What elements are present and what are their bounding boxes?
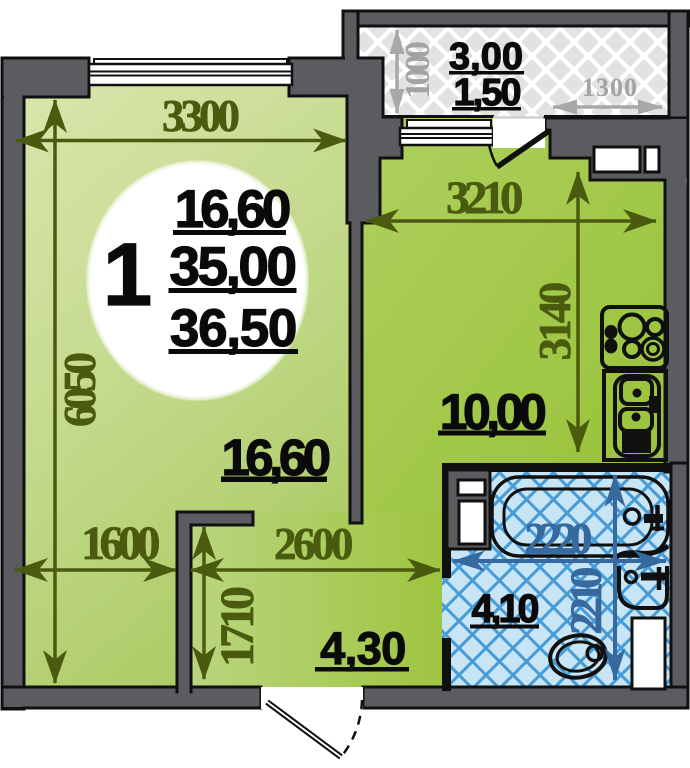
svg-text:35,00: 35,00 bbox=[169, 235, 295, 297]
svg-text:4,30: 4,30 bbox=[320, 623, 406, 674]
svg-text:6050: 6050 bbox=[55, 354, 105, 428]
svg-text:2600: 2600 bbox=[274, 519, 352, 569]
svg-text:1300: 1300 bbox=[582, 73, 638, 102]
svg-text:3140: 3140 bbox=[530, 283, 580, 360]
svg-text:1600: 1600 bbox=[81, 517, 160, 570]
svg-text:2220: 2220 bbox=[524, 514, 591, 563]
svg-text:1000: 1000 bbox=[398, 42, 437, 100]
svg-text:3210: 3210 bbox=[446, 172, 522, 224]
svg-text:1: 1 bbox=[103, 224, 153, 324]
svg-text:3300: 3300 bbox=[162, 91, 239, 141]
svg-text:4,10: 4,10 bbox=[472, 587, 539, 631]
svg-text:1710: 1710 bbox=[211, 587, 264, 667]
svg-text:2210: 2210 bbox=[562, 568, 611, 635]
